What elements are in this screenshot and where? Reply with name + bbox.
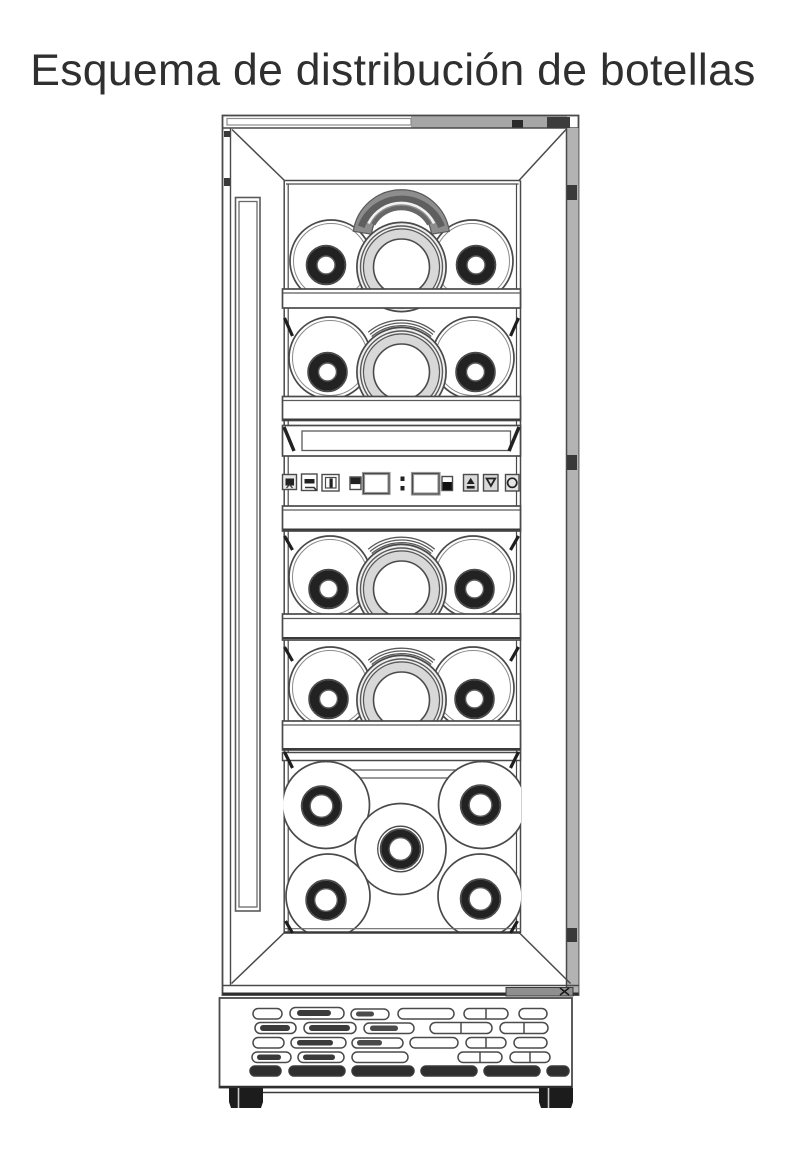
svg-text:Esquema de distribución de bot: Esquema de distribución de botellas xyxy=(30,46,755,95)
